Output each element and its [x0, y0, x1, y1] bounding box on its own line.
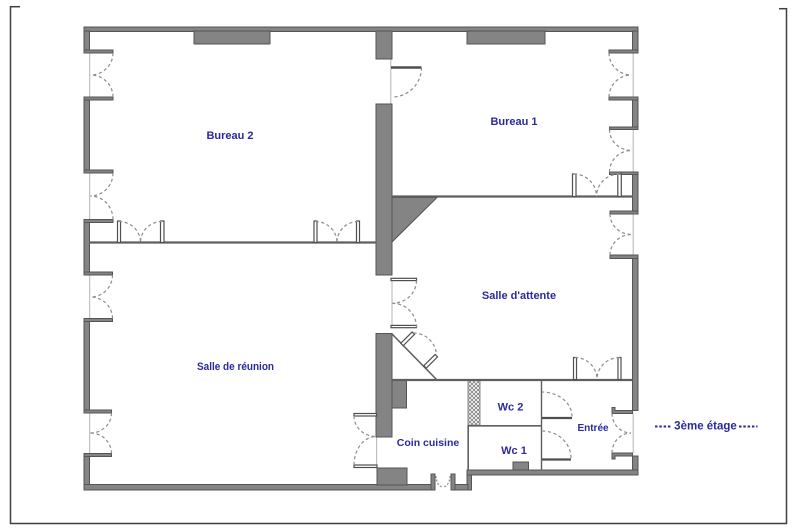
svg-text:Entrée: Entrée	[577, 423, 609, 434]
svg-text:Bureau 1: Bureau 1	[490, 116, 537, 128]
svg-text:Coin cuisine: Coin cuisine	[397, 437, 460, 449]
svg-text:Salle de réunion: Salle de réunion	[197, 361, 274, 373]
svg-text:3ème étage: 3ème étage	[674, 421, 737, 433]
svg-text:Salle d'attente: Salle d'attente	[482, 290, 556, 302]
svg-text:Wc 1: Wc 1	[501, 445, 527, 457]
svg-text:Bureau 2: Bureau 2	[206, 130, 253, 142]
svg-text:Wc 2: Wc 2	[498, 402, 524, 414]
